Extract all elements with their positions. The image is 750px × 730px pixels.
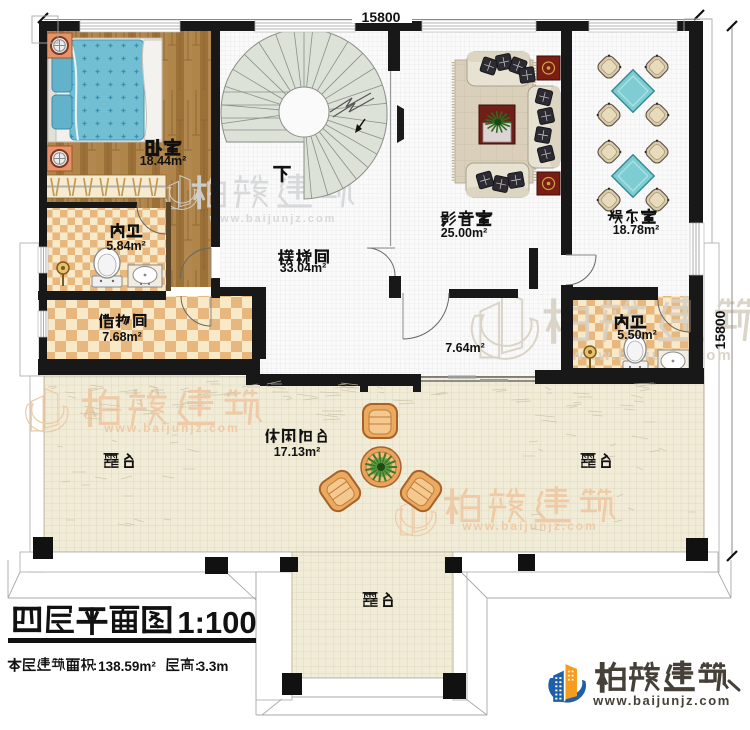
svg-text:15800: 15800	[362, 9, 401, 25]
svg-text:25.00m²: 25.00m²	[441, 226, 488, 240]
svg-text:3.3m: 3.3m	[198, 659, 229, 674]
svg-text:17.13m²: 17.13m²	[274, 445, 321, 459]
svg-text:www.baijunjz.com: www.baijunjz.com	[592, 693, 731, 708]
svg-text:138.59m²: 138.59m²	[98, 659, 156, 674]
svg-text:www.baijunjz.com: www.baijunjz.com	[103, 421, 240, 435]
svg-text:7.68m²: 7.68m²	[102, 330, 142, 344]
svg-text:1:100: 1:100	[177, 605, 256, 640]
svg-text:18.78m²: 18.78m²	[613, 223, 660, 237]
svg-text:5.84m²: 5.84m²	[106, 239, 146, 253]
svg-text:www.baijunjz.com: www.baijunjz.com	[461, 519, 598, 533]
svg-text::: :	[93, 658, 97, 673]
svg-text:15800: 15800	[712, 310, 728, 349]
svg-text:18.44m²: 18.44m²	[140, 154, 187, 168]
svg-text:www.baijunjz.com: www.baijunjz.com	[209, 213, 337, 225]
svg-text:33.04m²: 33.04m²	[280, 261, 327, 275]
svg-text:7.64m²: 7.64m²	[445, 341, 485, 355]
svg-text:5.50m²: 5.50m²	[617, 328, 657, 342]
